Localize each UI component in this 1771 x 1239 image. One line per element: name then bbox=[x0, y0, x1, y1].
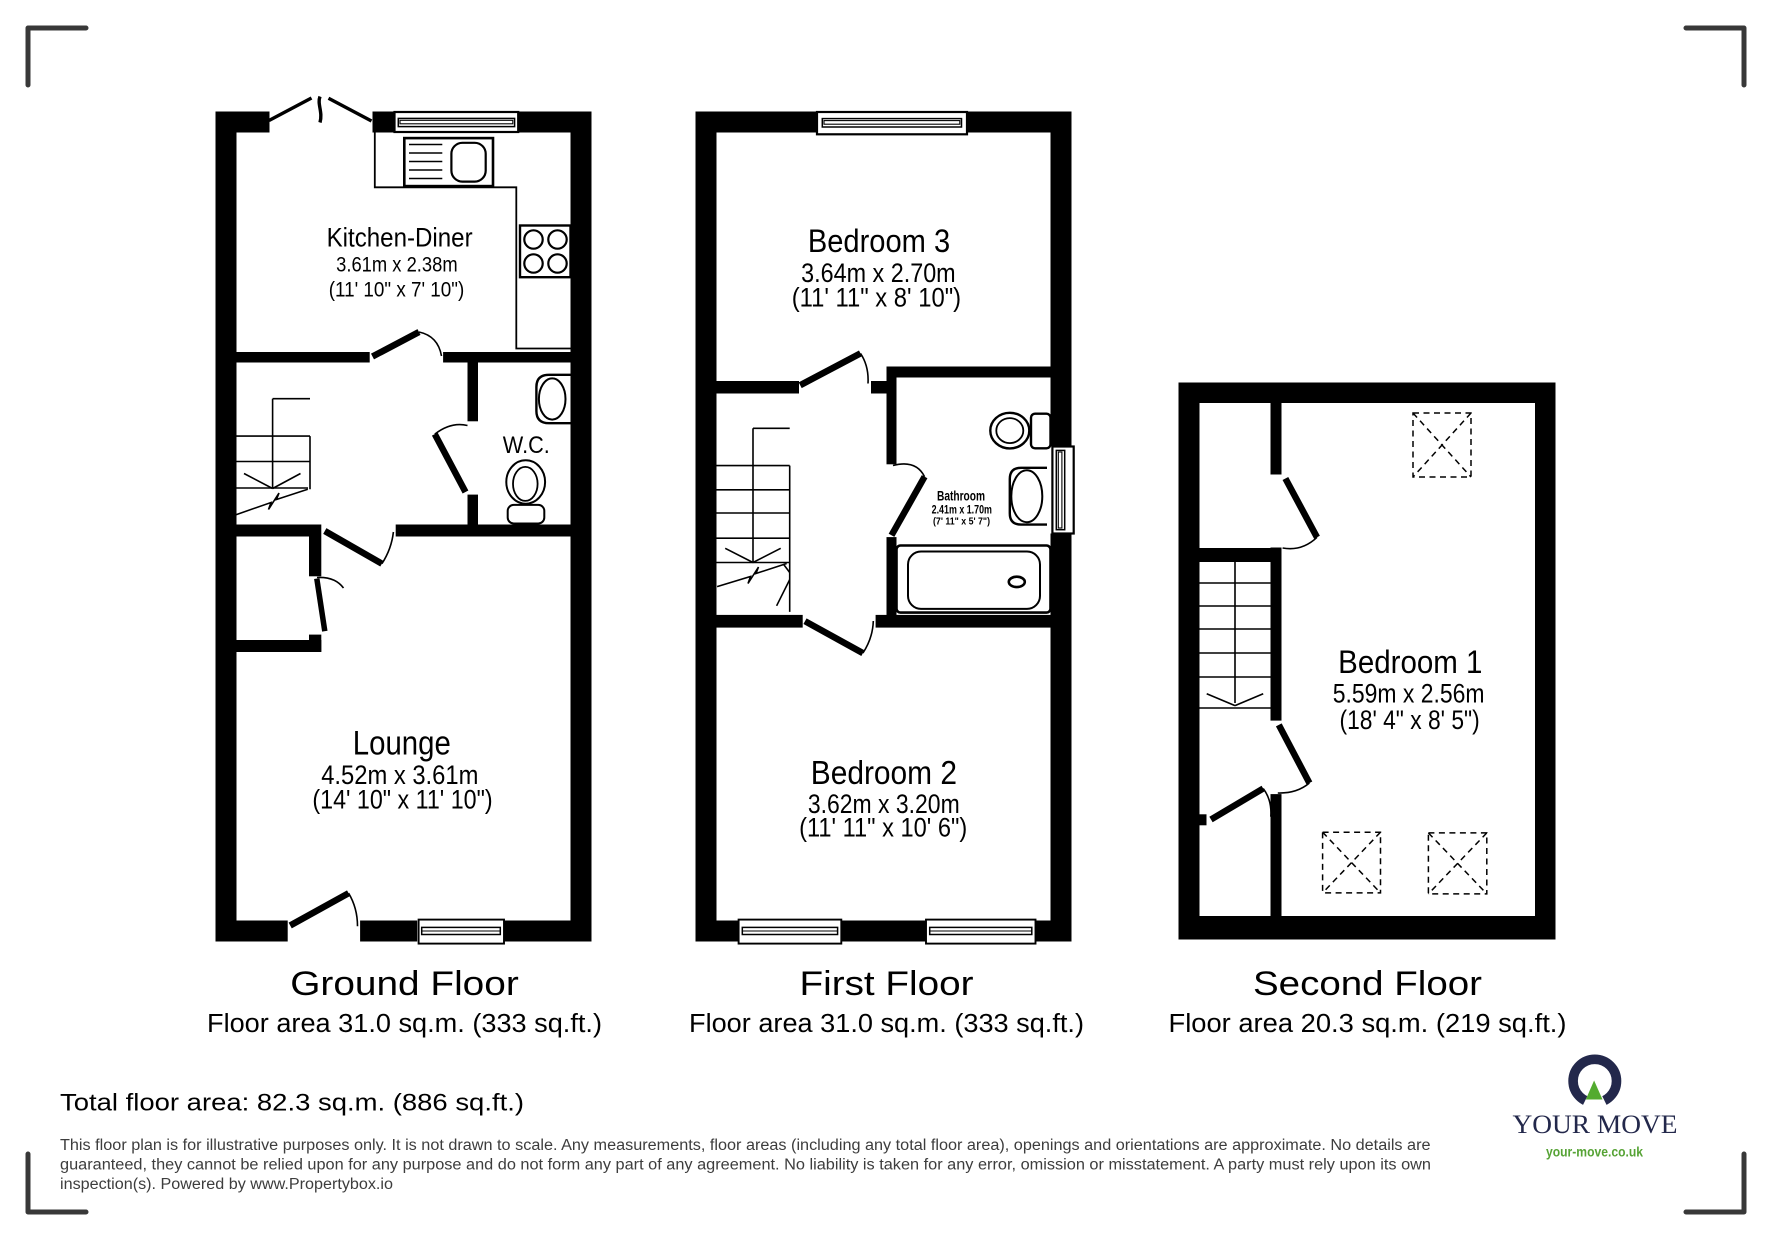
svg-text:guaranteed, they cannot be rel: guaranteed, they cannot be relied upon f… bbox=[60, 1157, 1431, 1174]
svg-text:YOUR MOVE: YOUR MOVE bbox=[1513, 1110, 1678, 1139]
svg-text:W.C.: W.C. bbox=[503, 432, 550, 459]
svg-text:Ground Floor: Ground Floor bbox=[290, 965, 519, 1003]
svg-text:Floor area 20.3 sq.m. (219 sq.: Floor area 20.3 sq.m. (219 sq.ft.) bbox=[1169, 1010, 1567, 1038]
svg-text:Bedroom 3: Bedroom 3 bbox=[808, 223, 950, 259]
svg-text:Floor area 31.0 sq.m. (333 sq.: Floor area 31.0 sq.m. (333 sq.ft.) bbox=[689, 1010, 1084, 1038]
svg-text:Second Floor: Second Floor bbox=[1253, 965, 1482, 1003]
svg-text:5.59m x 2.56m: 5.59m x 2.56m bbox=[1333, 679, 1485, 709]
svg-text:Bedroom 2: Bedroom 2 bbox=[811, 754, 957, 791]
svg-text:(18' 4" x 8' 5"): (18' 4" x 8' 5") bbox=[1340, 705, 1480, 735]
svg-text:(14' 10" x 11' 10"): (14' 10" x 11' 10") bbox=[312, 785, 492, 815]
svg-text:3.61m x 2.38m: 3.61m x 2.38m bbox=[336, 254, 458, 277]
svg-text:This floor plan is for illustr: This floor plan is for illustrative purp… bbox=[60, 1137, 1431, 1154]
svg-text:Bedroom 1: Bedroom 1 bbox=[1338, 644, 1482, 680]
svg-text:(11' 11" x 10' 6"): (11' 11" x 10' 6") bbox=[799, 813, 967, 843]
svg-text:(11' 11" x 8' 10"): (11' 11" x 8' 10") bbox=[792, 283, 961, 313]
svg-text:(11' 10" x 7' 10"): (11' 10" x 7' 10") bbox=[329, 279, 465, 302]
svg-text:inspection(s). Powered by www.: inspection(s). Powered by www.Propertybo… bbox=[60, 1176, 393, 1193]
svg-text:Kitchen-Diner: Kitchen-Diner bbox=[327, 223, 473, 253]
svg-text:Floor area 31.0 sq.m. (333 sq.: Floor area 31.0 sq.m. (333 sq.ft.) bbox=[207, 1010, 602, 1038]
svg-text:Bathroom: Bathroom bbox=[937, 489, 985, 504]
svg-text:First Floor: First Floor bbox=[800, 965, 974, 1003]
svg-text:your-move.co.uk: your-move.co.uk bbox=[1546, 1145, 1643, 1160]
svg-text:Lounge: Lounge bbox=[353, 725, 451, 763]
svg-text:Total floor area: 82.3 sq.m. (: Total floor area: 82.3 sq.m. (886 sq.ft.… bbox=[60, 1090, 524, 1117]
svg-text:(7' 11" x 5' 7"): (7' 11" x 5' 7") bbox=[933, 516, 990, 528]
